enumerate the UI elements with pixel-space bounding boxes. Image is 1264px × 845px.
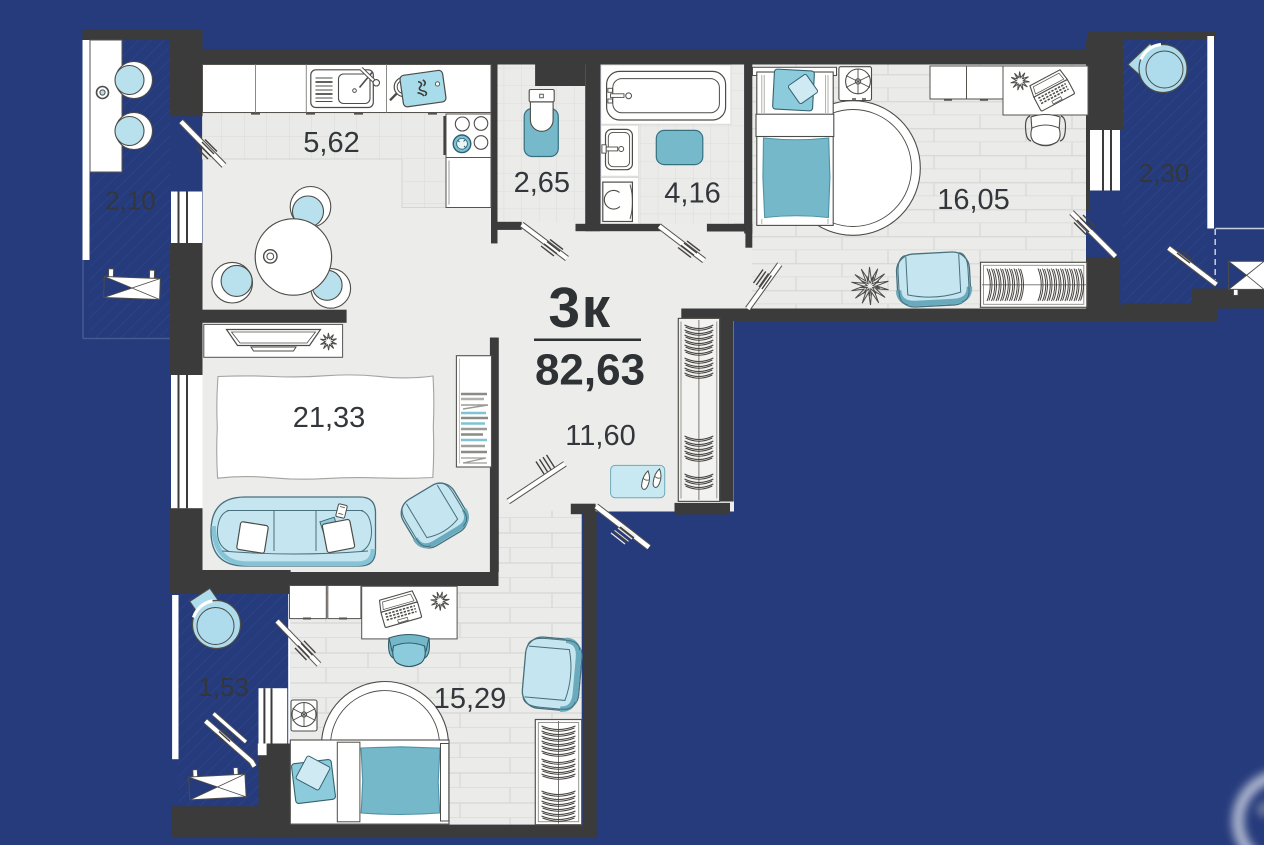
svg-text:15,29: 15,29 bbox=[434, 683, 507, 715]
svg-text:3к: 3к bbox=[548, 276, 611, 340]
svg-text:4,16: 4,16 bbox=[664, 178, 720, 210]
svg-text:1,53: 1,53 bbox=[198, 672, 249, 702]
svg-text:21,33: 21,33 bbox=[293, 402, 366, 434]
svg-text:82,63: 82,63 bbox=[535, 346, 645, 395]
svg-text:16,05: 16,05 bbox=[937, 184, 1010, 216]
svg-text:2,10: 2,10 bbox=[105, 186, 156, 216]
svg-text:2,30: 2,30 bbox=[1139, 158, 1190, 188]
svg-text:11,60: 11,60 bbox=[565, 420, 635, 452]
svg-text:5,62: 5,62 bbox=[303, 127, 359, 159]
svg-text:2,65: 2,65 bbox=[514, 167, 570, 199]
